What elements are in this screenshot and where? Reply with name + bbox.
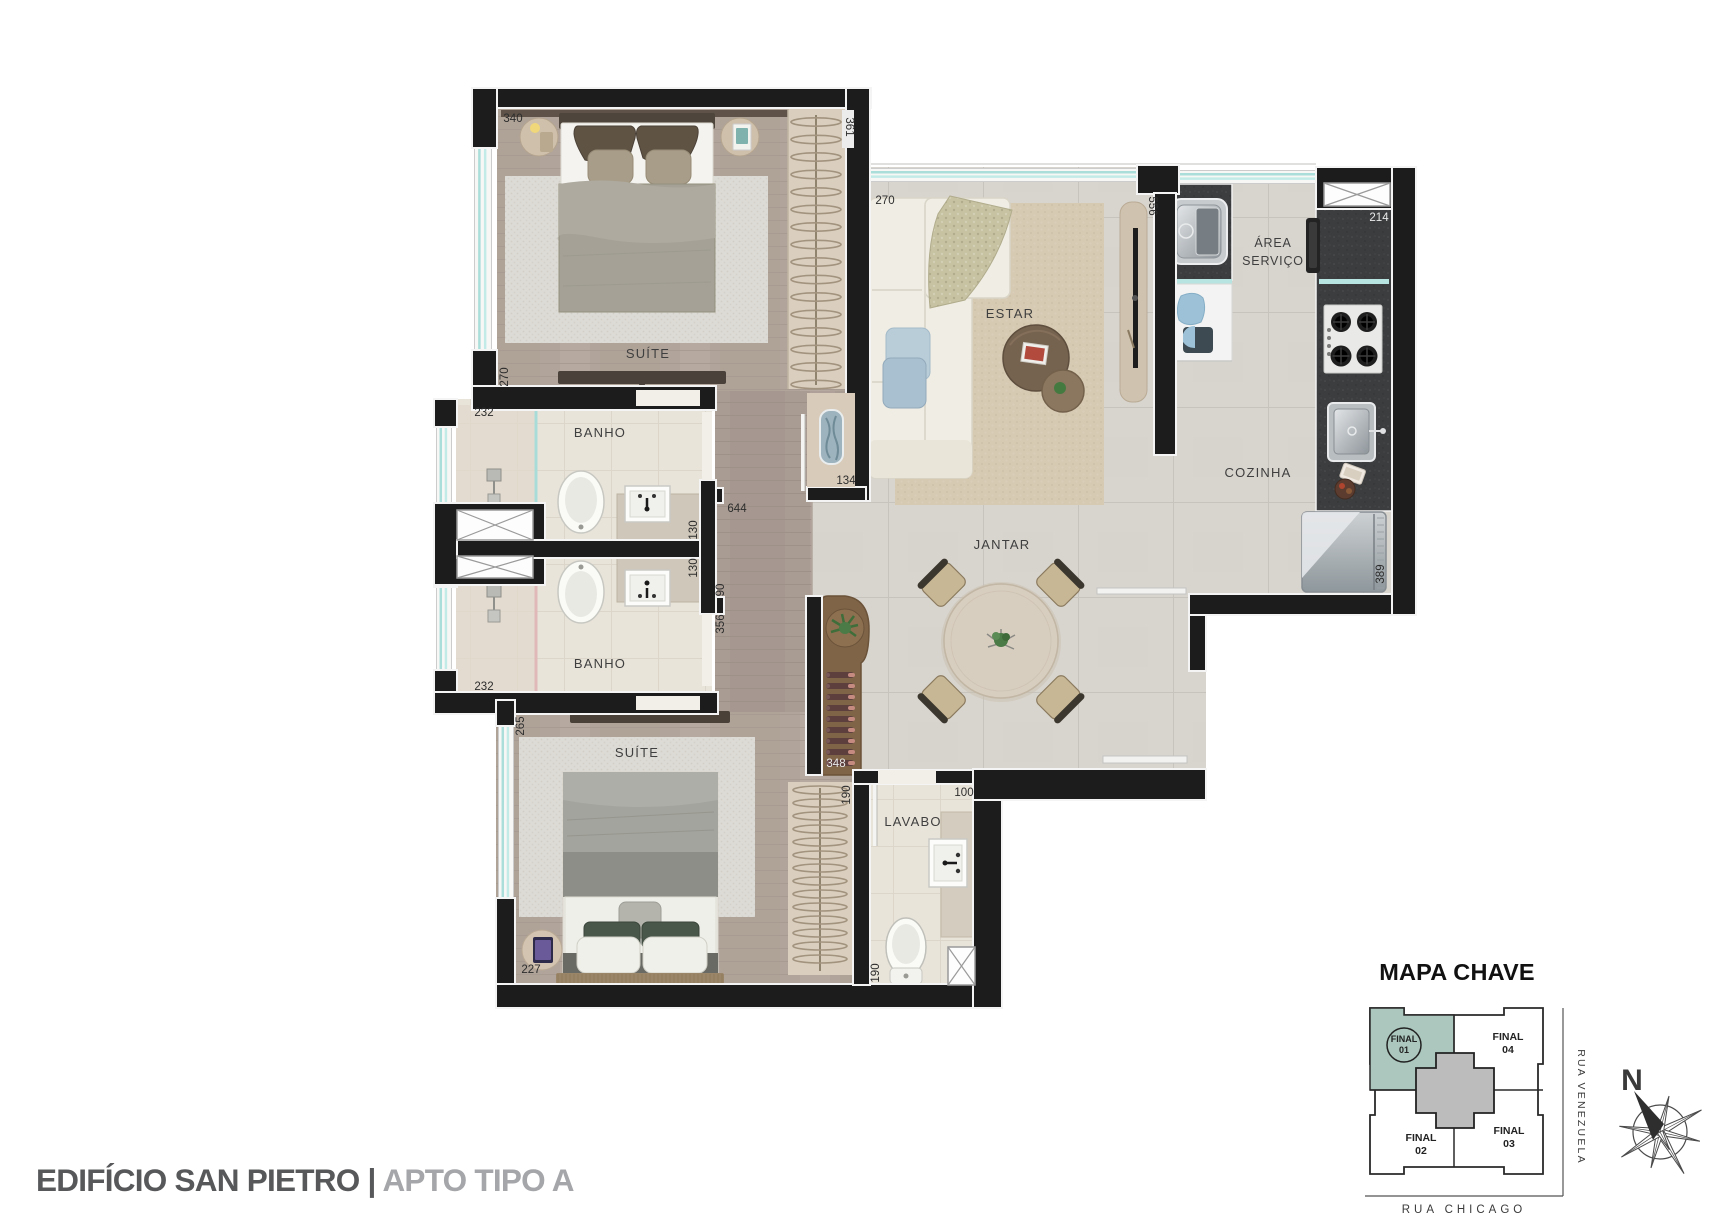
svg-text:JANTAR: JANTAR bbox=[974, 537, 1031, 552]
svg-text:01: 01 bbox=[1399, 1045, 1409, 1055]
svg-text:FINAL: FINAL bbox=[1406, 1132, 1437, 1144]
svg-text:232: 232 bbox=[474, 407, 493, 419]
svg-text:SUÍTE: SUÍTE bbox=[626, 346, 670, 361]
svg-text:N: N bbox=[1621, 1064, 1643, 1097]
svg-text:644: 644 bbox=[727, 503, 747, 515]
svg-text:03: 03 bbox=[1503, 1138, 1515, 1150]
svg-text:MAPA CHAVE: MAPA CHAVE bbox=[1379, 959, 1535, 985]
svg-text:RUA CHICAGO: RUA CHICAGO bbox=[1402, 1204, 1527, 1216]
svg-text:130: 130 bbox=[688, 558, 700, 577]
svg-text:232: 232 bbox=[474, 681, 493, 693]
svg-text:265: 265 bbox=[515, 716, 527, 735]
svg-text:ESTAR: ESTAR bbox=[986, 306, 1034, 321]
svg-text:340: 340 bbox=[503, 113, 522, 125]
svg-text:270: 270 bbox=[875, 195, 894, 207]
svg-text:LAVABO: LAVABO bbox=[884, 814, 941, 829]
svg-text:100: 100 bbox=[954, 787, 973, 799]
svg-text:ÁREA: ÁREA bbox=[1254, 235, 1291, 250]
svg-text:361: 361 bbox=[843, 117, 855, 136]
svg-text:130: 130 bbox=[688, 520, 700, 539]
svg-text:190: 190 bbox=[870, 963, 882, 982]
svg-text:214: 214 bbox=[1369, 212, 1389, 224]
svg-text:190: 190 bbox=[841, 785, 853, 804]
svg-text:348: 348 bbox=[826, 758, 845, 770]
svg-text:SERVIÇO: SERVIÇO bbox=[1242, 254, 1304, 268]
svg-text:02: 02 bbox=[1415, 1145, 1427, 1157]
svg-text:389: 389 bbox=[1375, 564, 1387, 583]
svg-text:EDIFÍCIO SAN PIETRO | APTO TIP: EDIFÍCIO SAN PIETRO | APTO TIPO A bbox=[36, 1162, 574, 1198]
svg-text:134: 134 bbox=[836, 475, 856, 487]
svg-text:SUÍTE: SUÍTE bbox=[615, 745, 659, 760]
svg-text:COZINHA: COZINHA bbox=[1225, 465, 1292, 480]
svg-text:356: 356 bbox=[715, 614, 727, 633]
svg-text:RUA VENEZUELA: RUA VENEZUELA bbox=[1575, 1049, 1587, 1165]
svg-text:BANHO: BANHO bbox=[574, 656, 626, 671]
svg-text:FINAL: FINAL bbox=[1391, 1034, 1418, 1044]
svg-text:BANHO: BANHO bbox=[574, 425, 626, 440]
svg-text:FINAL: FINAL bbox=[1494, 1125, 1525, 1137]
svg-text:90: 90 bbox=[715, 584, 727, 597]
svg-text:270: 270 bbox=[499, 367, 511, 386]
svg-text:FINAL: FINAL bbox=[1493, 1031, 1524, 1043]
svg-text:556: 556 bbox=[1146, 196, 1158, 215]
svg-text:227: 227 bbox=[521, 964, 540, 976]
svg-text:04: 04 bbox=[1502, 1044, 1514, 1056]
